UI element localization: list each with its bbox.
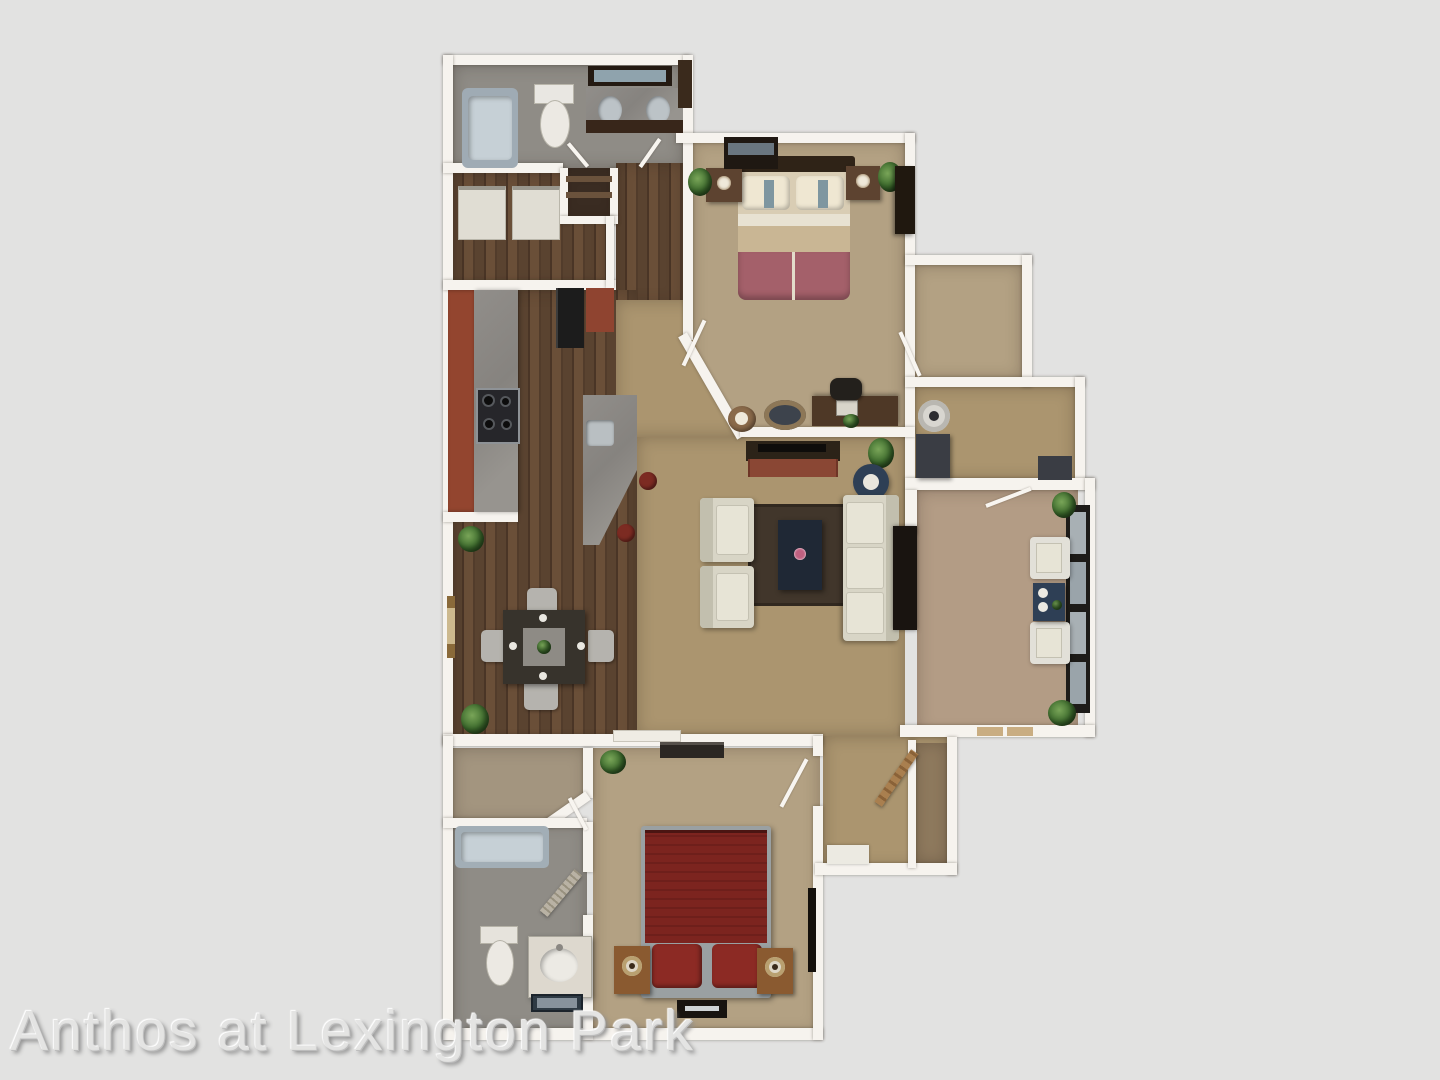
plant <box>1048 700 1076 726</box>
tv-screen <box>728 143 774 155</box>
laundry-counter <box>1038 456 1072 480</box>
cup <box>1038 588 1048 598</box>
hall-top-floor <box>616 163 683 305</box>
ottoman <box>764 400 806 430</box>
console-table <box>613 730 681 742</box>
bar-stool <box>639 472 657 490</box>
bed1-blanket <box>738 226 850 254</box>
bar-stool <box>617 524 635 542</box>
linen-shelf <box>566 176 612 182</box>
plant <box>461 704 489 734</box>
bed1-sheet-fold <box>738 214 850 226</box>
cup <box>1038 602 1048 612</box>
mirror-glass <box>594 70 666 82</box>
vanity-sink <box>540 948 578 982</box>
patio-chair-cushion <box>1036 543 1062 573</box>
walkin-closet-floor <box>913 265 1022 379</box>
window-pane <box>1070 612 1086 654</box>
stove-burner <box>500 396 511 407</box>
wall <box>740 427 915 437</box>
window-pane <box>1070 662 1086 704</box>
armchair-back <box>700 498 713 562</box>
dining-chair <box>524 682 558 710</box>
small-plant <box>843 414 859 428</box>
lamp-center <box>629 963 635 969</box>
wall <box>813 736 823 756</box>
lamp <box>856 174 870 188</box>
table-lamp <box>863 474 879 490</box>
tall-cabinet <box>678 60 692 108</box>
wall-mounted-tv <box>808 888 816 972</box>
dryer <box>512 186 560 240</box>
bed2-red-cover <box>645 830 767 943</box>
door-mat <box>1007 727 1033 736</box>
wall <box>443 736 453 1040</box>
faucet <box>556 944 563 951</box>
dresser <box>660 742 724 758</box>
plant <box>600 750 626 774</box>
linen-shelf <box>566 192 612 198</box>
entry-door-mat <box>827 845 869 864</box>
sofa-cushion <box>846 547 884 589</box>
wall <box>676 133 915 143</box>
lamp <box>717 176 731 190</box>
vanity-cabinet-front <box>586 120 683 133</box>
bathtub-basin <box>468 96 512 160</box>
stove-burner <box>482 394 495 407</box>
bed2-pillow <box>712 944 762 988</box>
wall <box>606 216 614 288</box>
soundbar <box>758 444 826 452</box>
window-pane <box>1070 562 1086 604</box>
armchair-cushion <box>716 573 749 621</box>
media-console-front <box>748 459 838 477</box>
bed2-pillow <box>652 944 702 988</box>
desk-chair <box>830 378 862 400</box>
door-frame <box>447 596 455 658</box>
pantry-cabinet <box>586 288 614 332</box>
armchair-cushion <box>716 505 749 555</box>
window-pane <box>1070 512 1086 554</box>
stove-burner <box>483 418 495 430</box>
wall <box>947 737 957 875</box>
bathtub-basin <box>461 832 543 862</box>
dryer-unit <box>916 434 950 478</box>
watermark-text: Anthos at Lexington Park <box>10 998 695 1064</box>
tv-cabinet <box>893 526 917 630</box>
wall <box>905 255 1032 265</box>
dining-chair <box>588 630 614 662</box>
floor-plan: Anthos at Lexington Park <box>0 0 1440 1080</box>
washer <box>458 186 506 240</box>
wall <box>1022 255 1032 387</box>
hall-closet-floor <box>915 743 947 863</box>
place-settings <box>539 614 547 622</box>
armoire <box>895 166 915 234</box>
stove-burner <box>501 419 512 430</box>
blanket-seam <box>792 252 795 300</box>
refrigerator <box>556 288 584 348</box>
armchair-back <box>700 566 713 628</box>
wall <box>1075 377 1085 490</box>
toilet-bowl <box>540 100 570 148</box>
wall <box>815 863 957 875</box>
wall <box>443 55 690 65</box>
sofa-cushion <box>846 502 884 544</box>
washer-drum <box>929 411 939 421</box>
table-centerpiece-plant <box>537 640 551 654</box>
plant <box>688 168 712 196</box>
patio-chair-cushion <box>1036 628 1062 658</box>
flower-vase <box>794 548 806 560</box>
wall <box>443 512 518 522</box>
accent-pillow <box>818 180 828 208</box>
lamp <box>735 412 748 425</box>
lamp-center <box>772 964 778 970</box>
small-plant <box>1052 600 1062 610</box>
sofa-cushion <box>846 592 884 634</box>
plant <box>458 526 484 552</box>
wall <box>905 377 1085 387</box>
accent-pillow <box>764 180 774 208</box>
plant <box>1052 492 1076 518</box>
door-mat <box>977 727 1003 736</box>
kitchen-sink <box>586 420 614 446</box>
toilet-bowl <box>486 940 514 986</box>
